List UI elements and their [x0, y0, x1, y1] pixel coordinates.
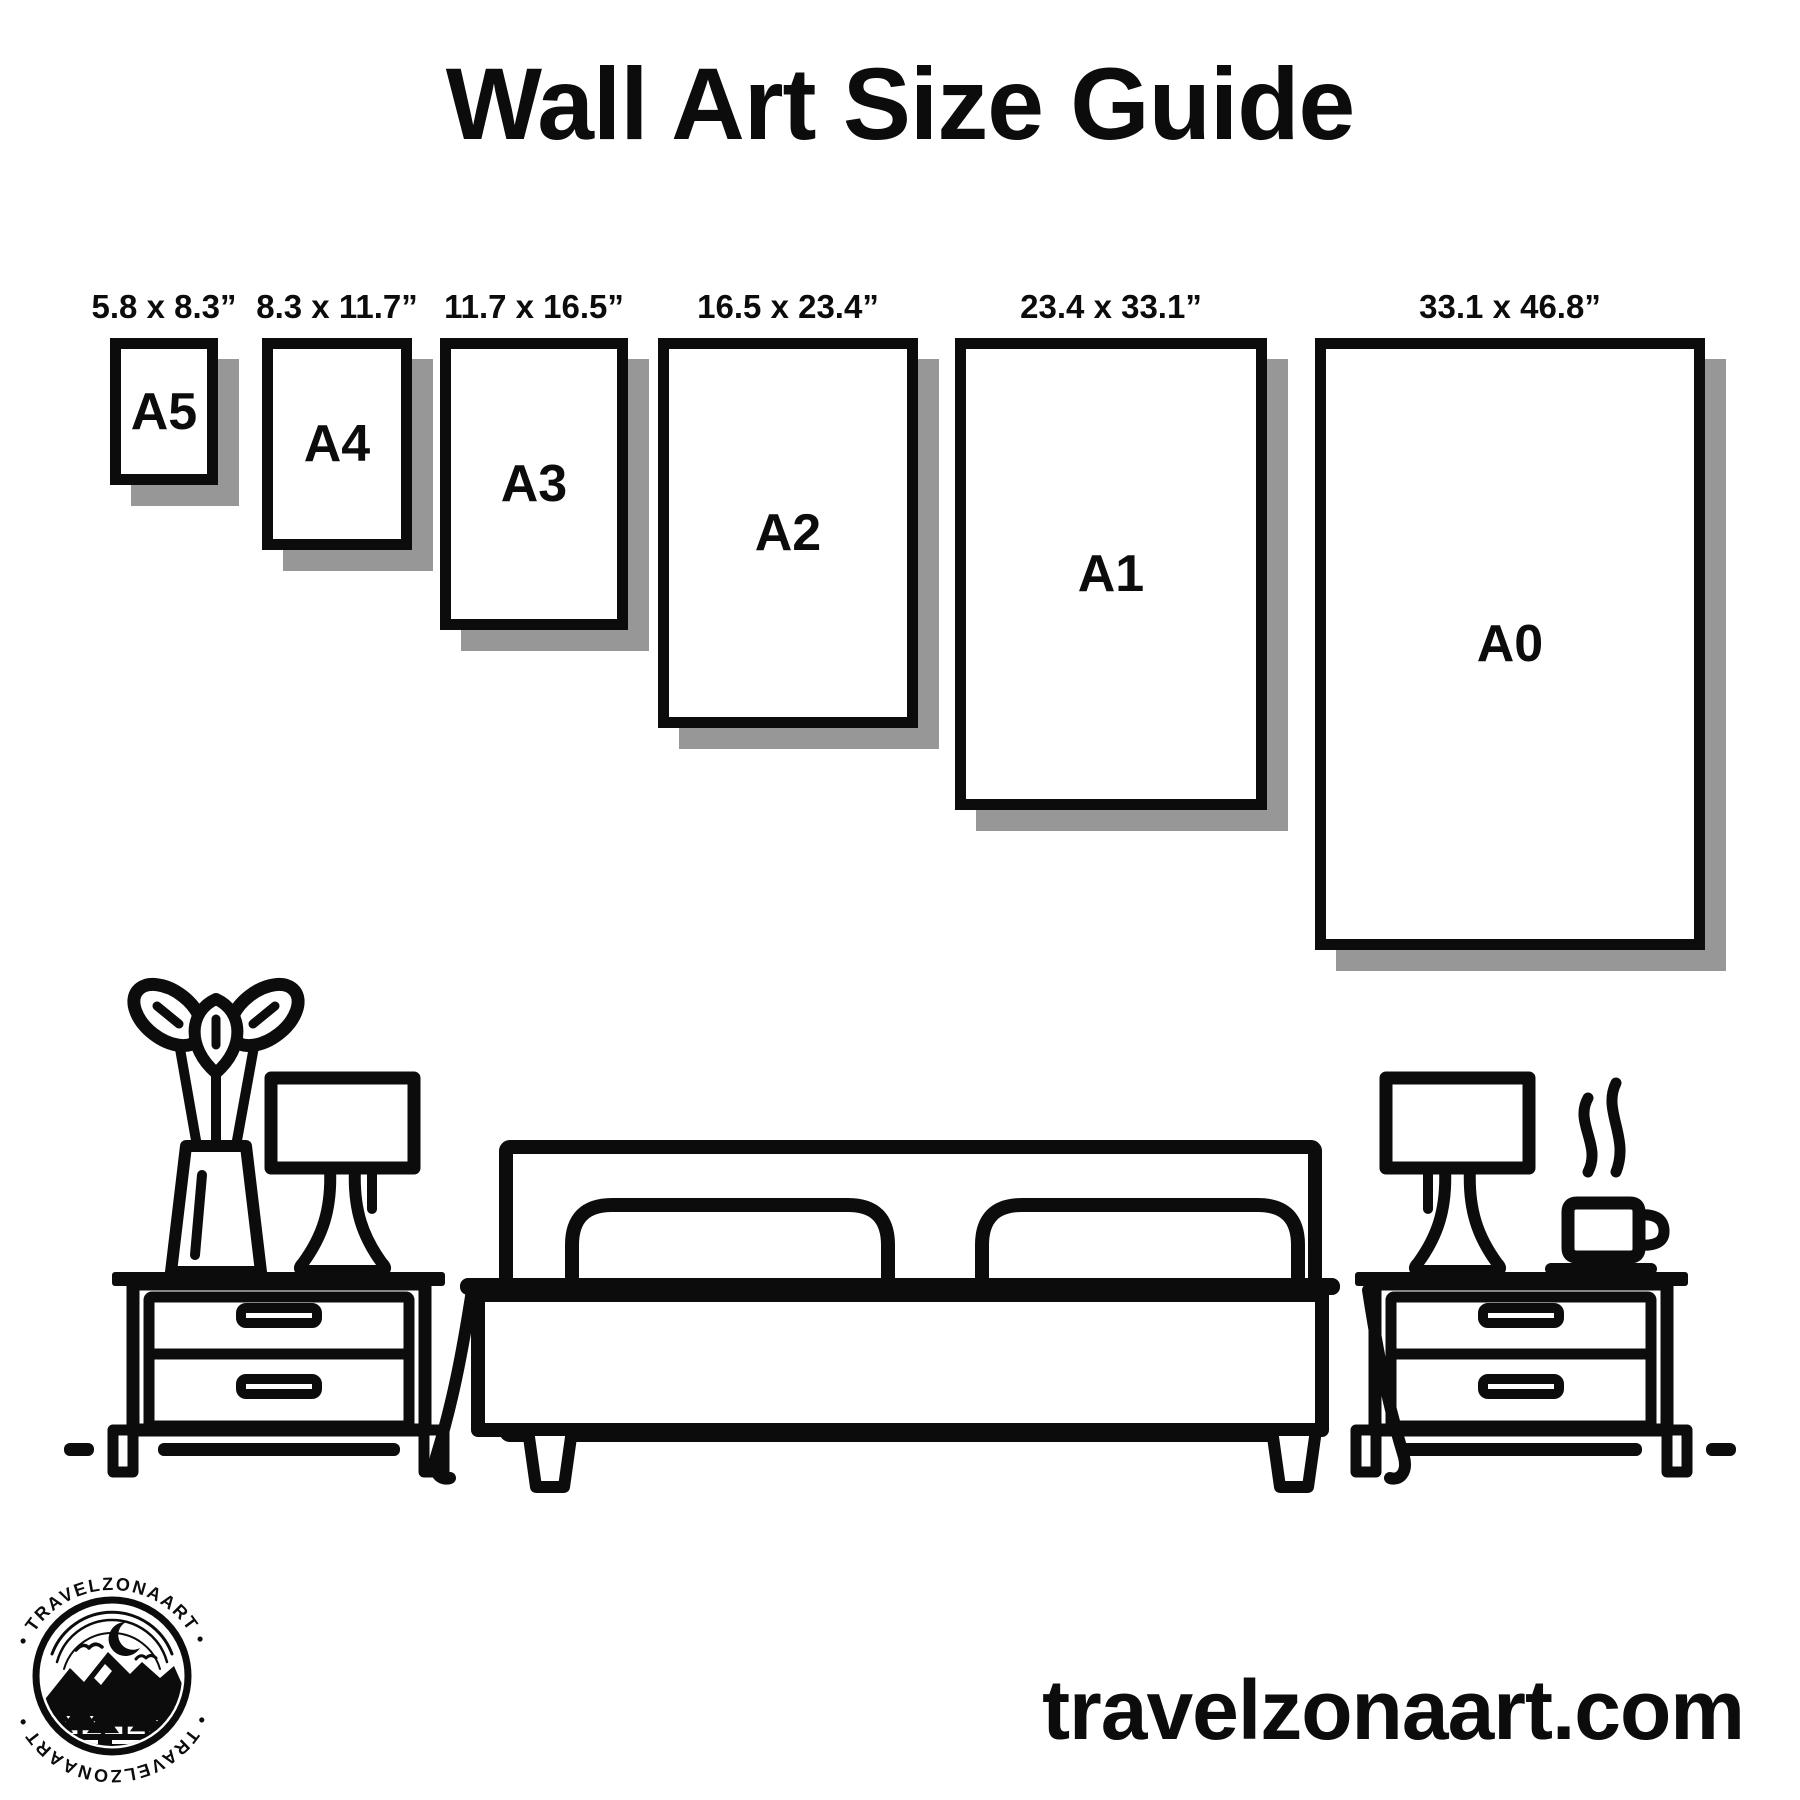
pillow-left — [572, 1205, 888, 1287]
steam-icon — [1584, 1098, 1592, 1172]
size-dimensions-label-a2: 16.5 x 23.4” — [697, 288, 879, 326]
wall-art-size-guide-page: Wall Art Size Guide 5.8 x 8.3” A5 8.3 x … — [0, 0, 1800, 1800]
size-dimensions-label-a1: 23.4 x 33.1” — [1020, 288, 1202, 326]
pillow-right — [982, 1205, 1298, 1287]
size-box-a4: A4 — [262, 338, 412, 550]
size-item-a2: 16.5 x 23.4” A2 — [658, 338, 918, 728]
bed-leg-left — [528, 1430, 572, 1487]
bedroom-scene-illustration — [0, 975, 1800, 1535]
size-box-a2: A2 — [658, 338, 918, 728]
duvet — [478, 1295, 1322, 1430]
size-box-a1: A1 — [955, 338, 1267, 810]
size-code-a2: A2 — [755, 503, 821, 563]
size-box-a3: A3 — [440, 338, 628, 630]
size-item-a3: 11.7 x 16.5” A3 — [440, 338, 628, 630]
coffee-cup-icon — [1545, 1083, 1664, 1275]
page-title: Wall Art Size Guide — [0, 46, 1800, 163]
nightstand-right-icon — [1355, 1272, 1736, 1472]
size-code-a5: A5 — [131, 382, 197, 442]
bed-icon — [435, 1147, 1405, 1487]
size-code-a4: A4 — [304, 414, 370, 474]
size-dimensions-label-a0: 33.1 x 46.8” — [1419, 288, 1601, 326]
steam-icon — [1612, 1083, 1620, 1172]
website-text: travelzonaart.com — [1042, 1662, 1744, 1759]
size-item-a5: 5.8 x 8.3” A5 — [110, 338, 218, 485]
table-lamp-left-icon — [271, 1078, 414, 1271]
nightstand-left-icon — [64, 1272, 445, 1472]
size-item-a4: 8.3 x 11.7” A4 — [262, 338, 412, 550]
bed-leg-right — [1272, 1430, 1316, 1487]
size-box-a5: A5 — [110, 338, 218, 485]
size-item-a0: 33.1 x 46.8” A0 — [1315, 338, 1705, 950]
brand-logo-badge: • TRAVELZONAART • • TRAVELZONAART • — [8, 1556, 222, 1796]
sheet-drape-left — [435, 1290, 472, 1479]
size-item-a1: 23.4 x 33.1” A1 — [955, 338, 1267, 810]
size-code-a0: A0 — [1477, 614, 1543, 674]
size-dimensions-label-a5: 5.8 x 8.3” — [92, 288, 237, 326]
size-code-a3: A3 — [501, 454, 567, 514]
table-lamp-right-icon — [1386, 1078, 1529, 1271]
size-code-a1: A1 — [1078, 544, 1144, 604]
size-dimensions-label-a4: 8.3 x 11.7” — [256, 288, 417, 326]
size-dimensions-label-a3: 11.7 x 16.5” — [444, 288, 624, 326]
size-box-a0: A0 — [1315, 338, 1705, 950]
